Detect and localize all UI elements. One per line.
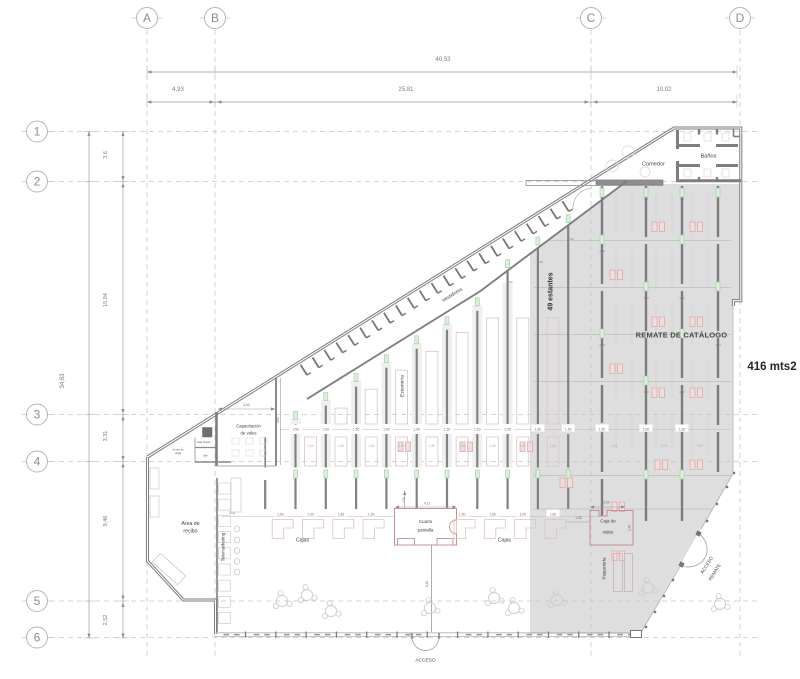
svg-text:2,40: 2,40	[628, 525, 632, 531]
svg-text:3,00: 3,00	[243, 403, 250, 407]
svg-text:2: 2	[34, 175, 41, 189]
svg-text:1,50: 1,50	[537, 260, 543, 264]
svg-text:1,50: 1,50	[398, 444, 404, 448]
svg-text:49 estantes: 49 estantes	[548, 272, 555, 310]
svg-text:1,20: 1,20	[599, 249, 605, 253]
svg-text:416 mts2: 416 mts2	[747, 361, 796, 373]
svg-text:1,50: 1,50	[402, 497, 406, 503]
svg-text:1,50: 1,50	[338, 512, 345, 516]
svg-text:Capacitación: Capacitación	[236, 424, 261, 429]
svg-text:1,50: 1,50	[679, 427, 686, 431]
svg-text:recibo: recibo	[183, 529, 197, 535]
svg-text:1,50: 1,50	[507, 280, 513, 284]
svg-text:Caja Fuerte: Caja Fuerte	[196, 440, 211, 444]
svg-text:1,50: 1,50	[679, 390, 685, 394]
svg-text:Telemarketing: Telemarketing	[221, 532, 226, 561]
svg-text:D: D	[736, 11, 745, 25]
svg-text:1,50: 1,50	[444, 427, 451, 431]
svg-text:1,50: 1,50	[292, 427, 299, 431]
svg-text:25,81: 25,81	[398, 87, 414, 93]
svg-text:4,21: 4,21	[424, 502, 431, 506]
svg-text:1,50: 1,50	[307, 444, 313, 448]
svg-text:1,50: 1,50	[353, 427, 360, 431]
svg-text:6: 6	[34, 631, 41, 645]
svg-text:1,50: 1,50	[368, 512, 375, 516]
svg-text:1,50: 1,50	[568, 237, 574, 241]
svg-text:1,50: 1,50	[277, 512, 284, 516]
svg-text:Cuarto: Cuarto	[419, 519, 433, 524]
svg-text:Cajas: Cajas	[498, 538, 512, 544]
svg-text:ACCESO: ACCESO	[415, 658, 436, 664]
svg-text:Area de: Area de	[181, 521, 199, 527]
svg-text:Vestidores: Vestidores	[441, 286, 464, 304]
svg-text:Comedor: Comedor	[642, 162, 665, 168]
svg-text:1,50: 1,50	[307, 512, 314, 516]
svg-text:Caja de: Caja de	[600, 519, 616, 524]
svg-text:vales: vales	[603, 530, 614, 535]
svg-text:pantalla: pantalla	[418, 528, 434, 533]
svg-text:Cajas: Cajas	[296, 538, 310, 544]
svg-text:Baños: Baños	[701, 154, 717, 160]
svg-text:1,50: 1,50	[519, 512, 526, 516]
svg-text:1,50: 1,50	[338, 444, 344, 448]
svg-text:1,50: 1,50	[383, 427, 390, 431]
svg-text:2,50: 2,50	[603, 501, 610, 505]
svg-text:4: 4	[34, 455, 41, 469]
svg-text:2,05: 2,05	[611, 444, 617, 448]
svg-text:A: A	[143, 11, 151, 25]
svg-text:1,50: 1,50	[535, 427, 542, 431]
svg-text:7,5: 7,5	[680, 197, 684, 201]
svg-text:3: 3	[34, 408, 41, 422]
svg-text:15,94: 15,94	[103, 293, 109, 307]
svg-text:1,50: 1,50	[643, 296, 649, 300]
svg-text:1,50: 1,50	[429, 444, 435, 448]
svg-text:REMATE DE CATÁLOGO: REMATE DE CATÁLOGO	[636, 331, 728, 340]
svg-text:1,50: 1,50	[599, 427, 606, 431]
svg-text:1,50: 1,50	[504, 427, 511, 431]
svg-text:2,52: 2,52	[103, 615, 109, 626]
svg-text:1,20: 1,20	[643, 390, 649, 394]
svg-text:4,93: 4,93	[172, 87, 184, 93]
svg-text:1,50: 1,50	[643, 427, 650, 431]
svg-text:1,50: 1,50	[599, 343, 605, 347]
svg-text:C: C	[587, 11, 596, 25]
svg-text:1,50: 1,50	[715, 343, 721, 347]
svg-text:7,5: 7,5	[644, 197, 648, 201]
svg-text:9,46: 9,46	[103, 516, 109, 527]
svg-text:de vales: de vales	[240, 431, 256, 436]
svg-text:2,05: 2,05	[697, 444, 703, 448]
svg-text:1,50: 1,50	[489, 444, 495, 448]
svg-text:1,50: 1,50	[575, 516, 582, 520]
svg-text:1,50: 1,50	[550, 444, 556, 448]
svg-text:3,31: 3,31	[103, 431, 109, 442]
svg-text:Paquetería: Paquetería	[602, 557, 607, 580]
svg-text:1,50: 1,50	[520, 444, 526, 448]
svg-text:1,50: 1,50	[322, 427, 329, 431]
svg-text:1,50: 1,50	[368, 444, 374, 448]
svg-text:B: B	[211, 11, 219, 25]
svg-text:1,50: 1,50	[550, 512, 557, 516]
svg-text:1,50: 1,50	[565, 427, 572, 431]
svg-text:34,63: 34,63	[60, 373, 66, 389]
svg-text:1,50: 1,50	[459, 512, 466, 516]
svg-text:1,50: 1,50	[489, 512, 496, 516]
svg-text:6,40: 6,40	[425, 581, 429, 587]
svg-text:1,50: 1,50	[413, 427, 420, 431]
svg-text:5: 5	[34, 594, 41, 608]
svg-text:10,02: 10,02	[656, 87, 672, 93]
svg-text:REMATE: REMATE	[708, 563, 722, 582]
svg-text:3,6: 3,6	[103, 151, 109, 159]
svg-text:4,60: 4,60	[276, 417, 280, 423]
svg-text:Site: Site	[203, 454, 208, 458]
svg-text:carga: carga	[175, 452, 182, 455]
svg-text:1: 1	[34, 125, 41, 139]
svg-text:1,50: 1,50	[459, 444, 465, 448]
svg-text:1,50: 1,50	[679, 296, 685, 300]
svg-text:1,50: 1,50	[474, 427, 481, 431]
svg-text:Estantería: Estantería	[400, 375, 406, 397]
svg-text:40,53: 40,53	[435, 57, 451, 63]
svg-text:2,05: 2,05	[661, 444, 667, 448]
